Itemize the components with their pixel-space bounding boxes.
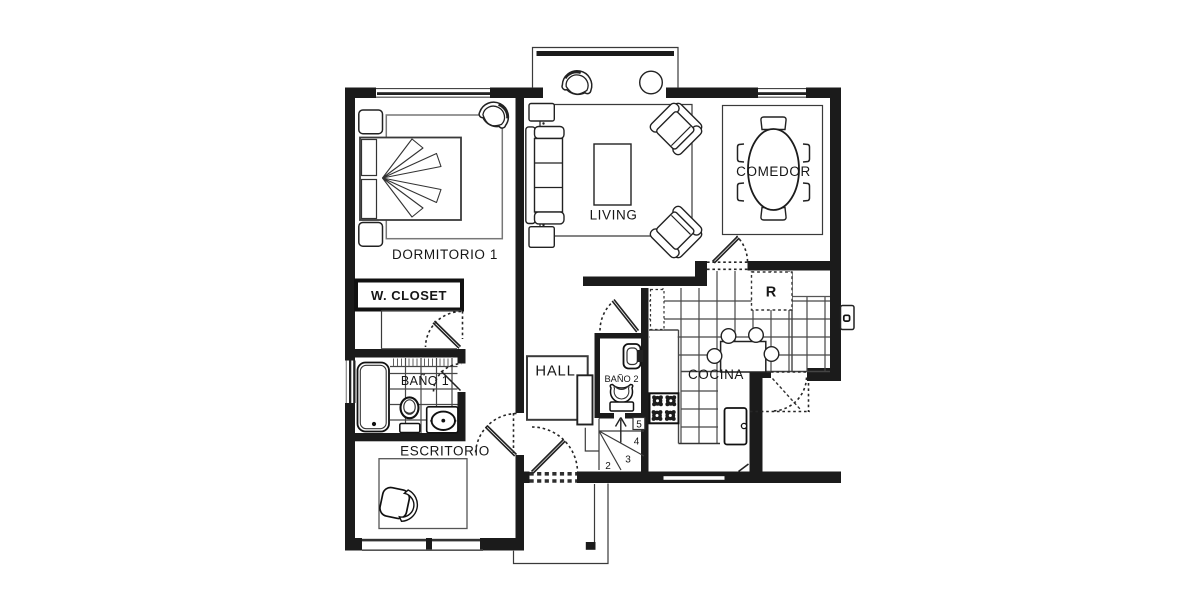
- svg-text:R: R: [766, 285, 777, 301]
- svg-text:W. CLOSET: W. CLOSET: [371, 288, 447, 303]
- svg-text:5: 5: [636, 419, 642, 430]
- svg-text:COMEDOR: COMEDOR: [736, 164, 811, 179]
- svg-text:BAÑO 1: BAÑO 1: [401, 374, 449, 388]
- svg-text:3: 3: [625, 455, 631, 466]
- svg-text:COCINA: COCINA: [688, 367, 744, 382]
- svg-text:4: 4: [634, 437, 640, 448]
- svg-text:2: 2: [605, 461, 611, 472]
- svg-text:DORMITORIO 1: DORMITORIO 1: [392, 247, 498, 262]
- svg-text:LIVING: LIVING: [590, 208, 638, 223]
- svg-text:BAÑO 2: BAÑO 2: [604, 374, 638, 384]
- svg-text:HALL: HALL: [535, 363, 575, 379]
